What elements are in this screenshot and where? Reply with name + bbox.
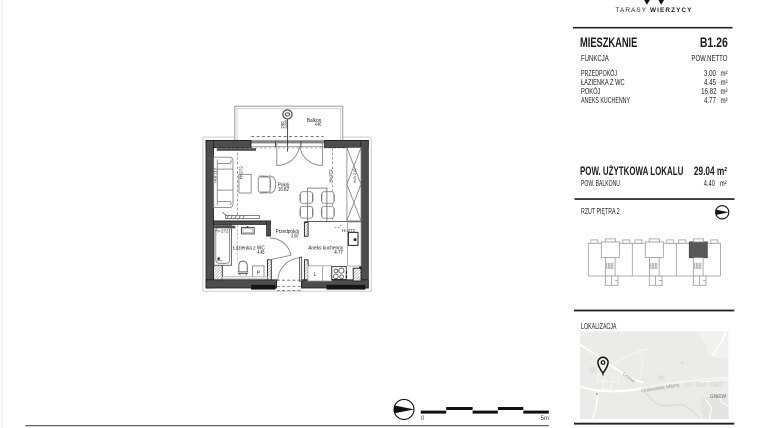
svg-text:GNIEW: GNIEW [710, 394, 726, 400]
svg-text:H=272: H=272 [215, 228, 229, 233]
svg-text:0: 0 [421, 416, 425, 422]
svg-text:HxB 210: HxB 210 [213, 167, 218, 183]
svg-text:4.45: 4.45 [257, 250, 264, 256]
svg-text:5m: 5m [541, 416, 549, 422]
svg-text:H=272: H=272 [239, 166, 244, 180]
svg-text:4.40: 4.40 [315, 122, 322, 128]
svg-text:H=272: H=272 [328, 169, 333, 183]
svg-text:2300: 2300 [283, 119, 288, 128]
svg-text:HxB 210: HxB 210 [352, 168, 357, 184]
svg-text:P: P [257, 271, 261, 277]
svg-text:L: L [313, 272, 316, 278]
svg-text:3.00: 3.00 [291, 233, 298, 239]
svg-text:H=272: H=272 [342, 228, 356, 233]
svg-text:4.77: 4.77 [334, 250, 343, 256]
svg-text:16.82: 16.82 [278, 187, 289, 193]
